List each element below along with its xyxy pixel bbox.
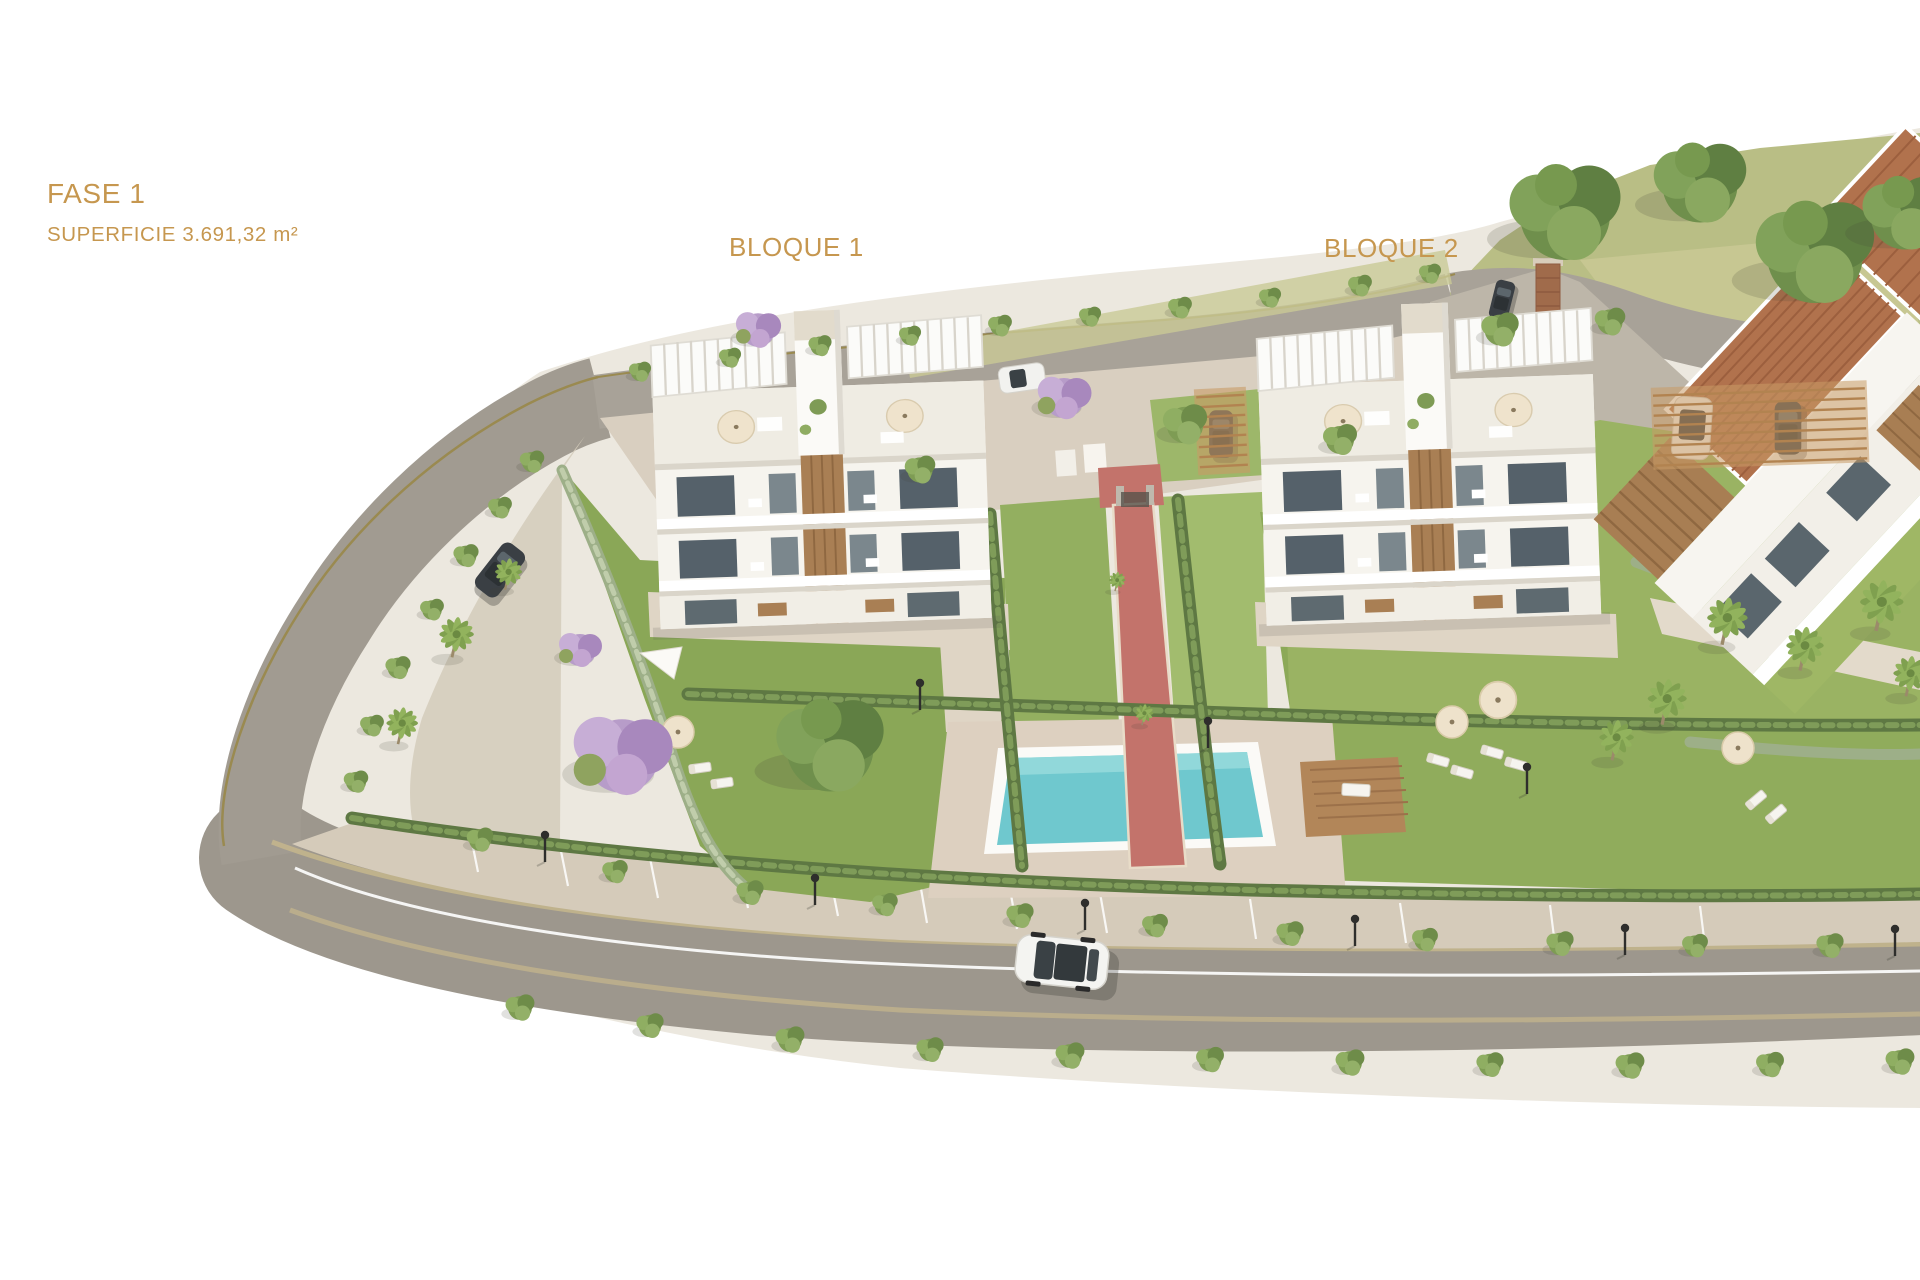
annotations: FASE 1 SUPERFICIE 3.691,32 m² BLOQUE 1 B… [47, 178, 1459, 263]
building-block-2 [1248, 297, 1610, 636]
block-2-label: BLOQUE 2 [1324, 233, 1459, 263]
umbrella-amenity-2 [1480, 682, 1517, 719]
parking-pad-1 [1055, 449, 1077, 476]
umbrella-block3-garden [1722, 732, 1754, 764]
surface-label: SUPERFICIE 3.691,32 m² [47, 223, 298, 246]
phase-label: FASE 1 [47, 178, 146, 209]
carport-1 [1194, 387, 1250, 476]
carport-2 [1651, 380, 1870, 469]
deck-bench [1342, 783, 1371, 796]
render-page: { "labels": { "phase": "FASE 1", "surfac… [0, 0, 1920, 1280]
site-render: FASE 1 SUPERFICIE 3.691,32 m² BLOQUE 1 B… [0, 0, 1920, 1280]
block-1-label: BLOQUE 1 [729, 232, 864, 262]
umbrella-amenity-1 [1436, 706, 1468, 738]
